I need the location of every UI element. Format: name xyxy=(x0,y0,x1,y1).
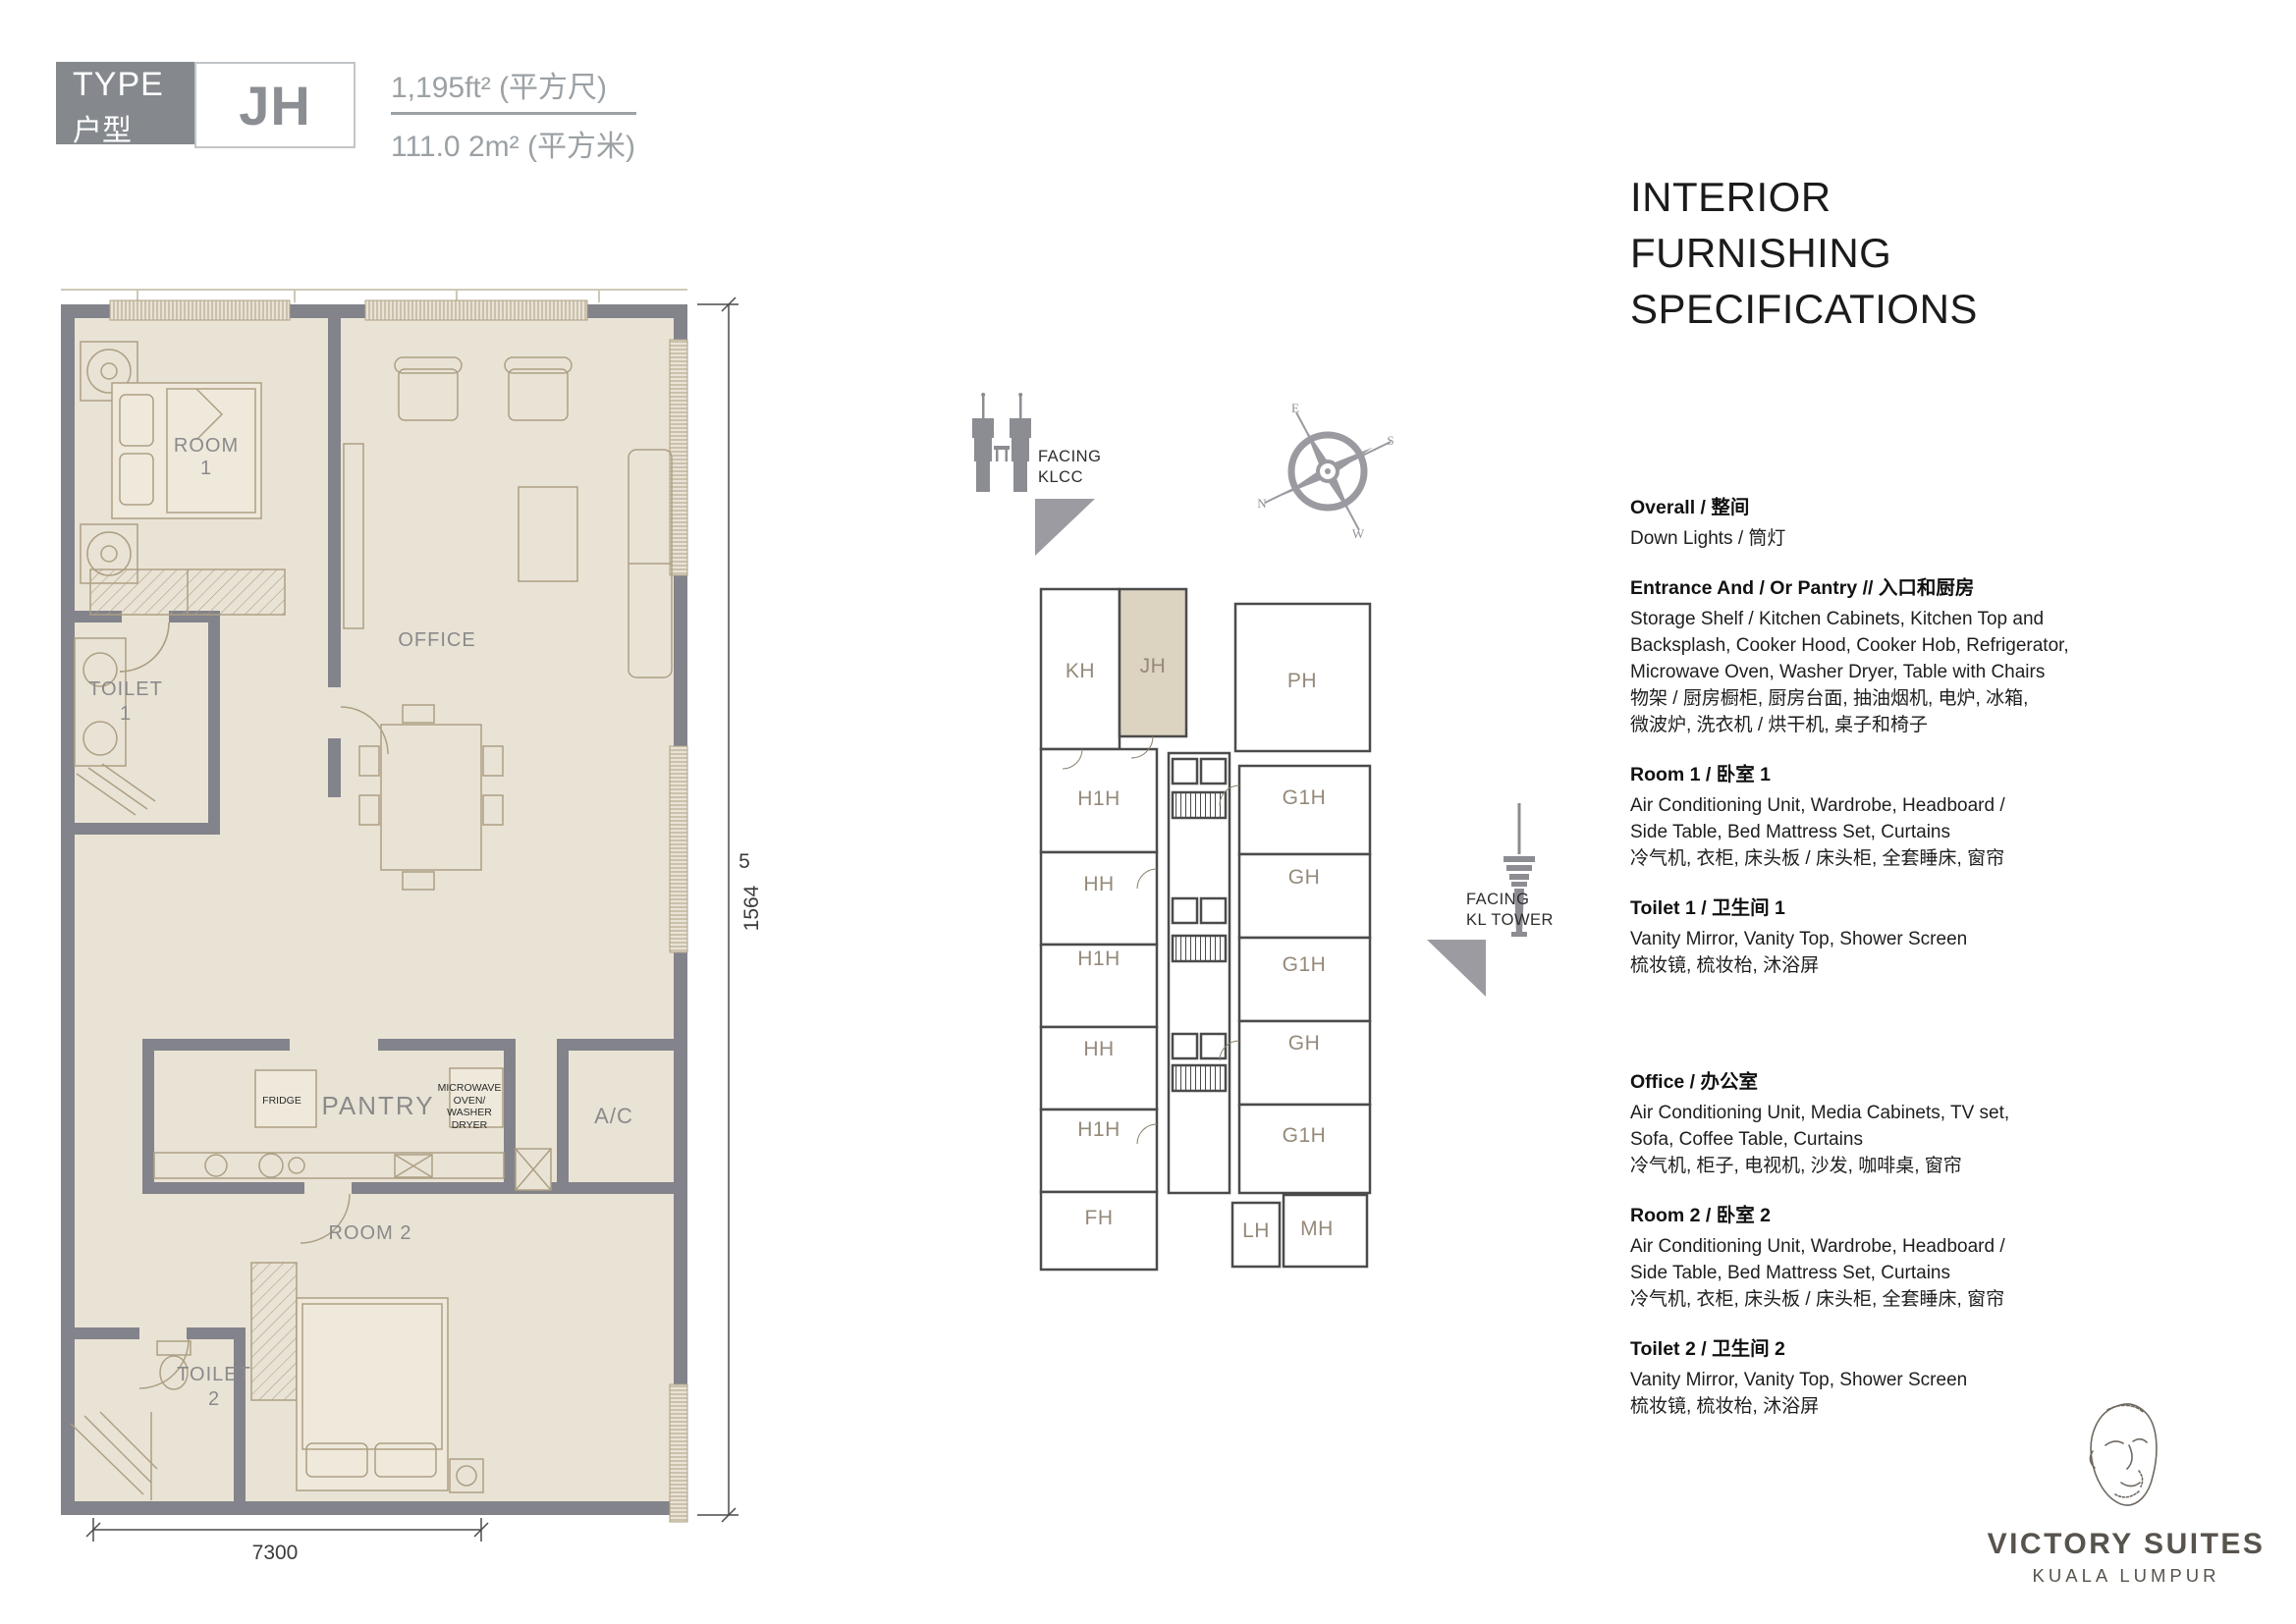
facing-kl-tower-label: FACING KL TOWER xyxy=(1466,890,1554,931)
type-label-zh: 户型 xyxy=(73,106,132,149)
ac-label: A/C xyxy=(574,1104,653,1129)
keyplan-unit-h1h-2: H1H xyxy=(1069,947,1128,971)
spec-body: Air Conditioning Unit, Wardrobe, Headboa… xyxy=(1630,792,2151,872)
keyplan-unit-hh-2: HH xyxy=(1069,1038,1128,1061)
spec-heading: Overall / 整间 xyxy=(1630,491,2151,519)
spec-body: Air Conditioning Unit, Media Cabinets, T… xyxy=(1630,1100,2151,1179)
specs-group-2: Office / 办公室 Air Conditioning Unit, Medi… xyxy=(1630,1065,2151,1439)
spec-section-room1: Room 1 / 卧室 1 Air Conditioning Unit, War… xyxy=(1630,758,2151,872)
area-metric: 111.0 2m² (平方米) xyxy=(391,122,646,165)
spec-body: Storage Shelf / Kitchen Cabinets, Kitche… xyxy=(1630,606,2151,738)
spec-section-overall: Overall / 整间 Down Lights / 筒灯 xyxy=(1630,491,2151,552)
brand-name: VICTORY SUITES xyxy=(1979,1528,2273,1561)
toilet1-label: TOILET 1 xyxy=(88,677,163,727)
spec-heading: Room 1 / 卧室 1 xyxy=(1630,758,2151,786)
facing-kl-tower-arrow xyxy=(1427,940,1486,997)
spec-section-toilet2: Toilet 2 / 卫生间 2 Vanity Mirror, Vanity T… xyxy=(1630,1332,2151,1420)
type-label-en: TYPE xyxy=(73,66,164,104)
brochure-page: TYPE 户型 JH 1,195ft² (平方尺) 111.0 2m² (平方米… xyxy=(0,0,2296,1624)
spec-heading: Entrance And / Or Pantry // 入口和厨房 xyxy=(1630,571,2151,600)
compass-west: W xyxy=(1349,526,1367,542)
compass-south: S xyxy=(1382,433,1399,449)
keyplan-unit-kh: KH xyxy=(1051,660,1110,683)
keyplan-unit-g1h-3: G1H xyxy=(1275,1124,1334,1148)
unit-area: 1,195ft² (平方尺) 111.0 2m² (平方米) xyxy=(391,63,646,165)
keyplan-unit-fh: FH xyxy=(1069,1207,1128,1230)
floorplan-drawing xyxy=(49,285,746,1581)
fridge-label: FRIDGE xyxy=(249,1095,314,1108)
unit-type-box: JH xyxy=(194,62,355,148)
facing-klcc-label: FACING KLCC xyxy=(1038,447,1101,488)
compass-rose-icon xyxy=(1245,393,1412,550)
keyplan-unit-mh: MH xyxy=(1287,1218,1346,1241)
spec-section-entrance-pantry: Entrance And / Or Pantry // 入口和厨房 Storag… xyxy=(1630,571,2151,738)
office-label: OFFICE xyxy=(388,629,486,652)
victory-suites-face-logo xyxy=(2078,1398,2172,1514)
pantry-label: PANTRY xyxy=(319,1091,437,1121)
keyplan-unit-g1h-1: G1H xyxy=(1275,786,1334,810)
spec-heading: Toilet 1 / 卫生间 1 xyxy=(1630,892,2151,920)
keyplan-unit-g1h-2: G1H xyxy=(1275,953,1334,977)
specs-title: INTERIOR FURNISHING SPECIFICATIONS xyxy=(1630,169,1978,337)
keyplan-unit-h1h-1: H1H xyxy=(1069,787,1128,811)
microwave-washer-label: MICROWAVE OVEN/ WASHER DRYER xyxy=(430,1082,509,1131)
spec-heading: Toilet 2 / 卫生间 2 xyxy=(1630,1332,2151,1361)
dimension-height: 1564 xyxy=(740,869,762,947)
spec-body: Vanity Mirror, Vanity Top, Shower Screen… xyxy=(1630,926,2151,979)
spec-body: Vanity Mirror, Vanity Top, Shower Screen… xyxy=(1630,1367,2151,1420)
keyplan-unit-gh-1: GH xyxy=(1275,866,1334,890)
compass-east: E xyxy=(1286,401,1304,416)
room1-label: ROOM 1 xyxy=(167,435,246,480)
keyplan-unit-lh: LH xyxy=(1227,1219,1285,1243)
keyplan-unit-jh: JH xyxy=(1123,655,1182,678)
area-imperial: 1,195ft² (平方尺) xyxy=(391,63,646,106)
dimension-width: 7300 xyxy=(226,1542,324,1565)
specs-group-1: Overall / 整间 Down Lights / 筒灯 Entrance A… xyxy=(1630,491,2151,999)
keyplan-unit-h1h-3: H1H xyxy=(1069,1118,1128,1142)
keyplan-unit-ph: PH xyxy=(1273,670,1332,693)
room2-label: ROOM 2 xyxy=(321,1222,419,1245)
klcc-towers-icon xyxy=(967,391,1036,494)
keyplan-unit-hh-1: HH xyxy=(1069,873,1128,896)
spec-section-room2: Room 2 / 卧室 2 Air Conditioning Unit, War… xyxy=(1630,1199,2151,1313)
spec-heading: Office / 办公室 xyxy=(1630,1065,2151,1094)
spec-section-toilet1: Toilet 1 / 卫生间 1 Vanity Mirror, Vanity T… xyxy=(1630,892,2151,979)
spec-heading: Room 2 / 卧室 2 xyxy=(1630,1199,2151,1227)
compass-north: N xyxy=(1253,496,1271,512)
keyplan-unit-gh-2: GH xyxy=(1275,1032,1334,1056)
spec-section-office: Office / 办公室 Air Conditioning Unit, Medi… xyxy=(1630,1065,2151,1179)
spec-body: Down Lights / 筒灯 xyxy=(1630,525,2151,552)
unit-type-code: JH xyxy=(239,74,311,137)
brand-city: KUALA LUMPUR xyxy=(1979,1565,2273,1587)
type-badge: TYPE 户型 xyxy=(56,62,194,144)
toilet2-label: TOILET 2 xyxy=(177,1363,251,1412)
area-divider xyxy=(391,112,636,115)
facing-klcc-arrow xyxy=(1035,499,1095,556)
spec-body: Air Conditioning Unit, Wardrobe, Headboa… xyxy=(1630,1233,2151,1313)
